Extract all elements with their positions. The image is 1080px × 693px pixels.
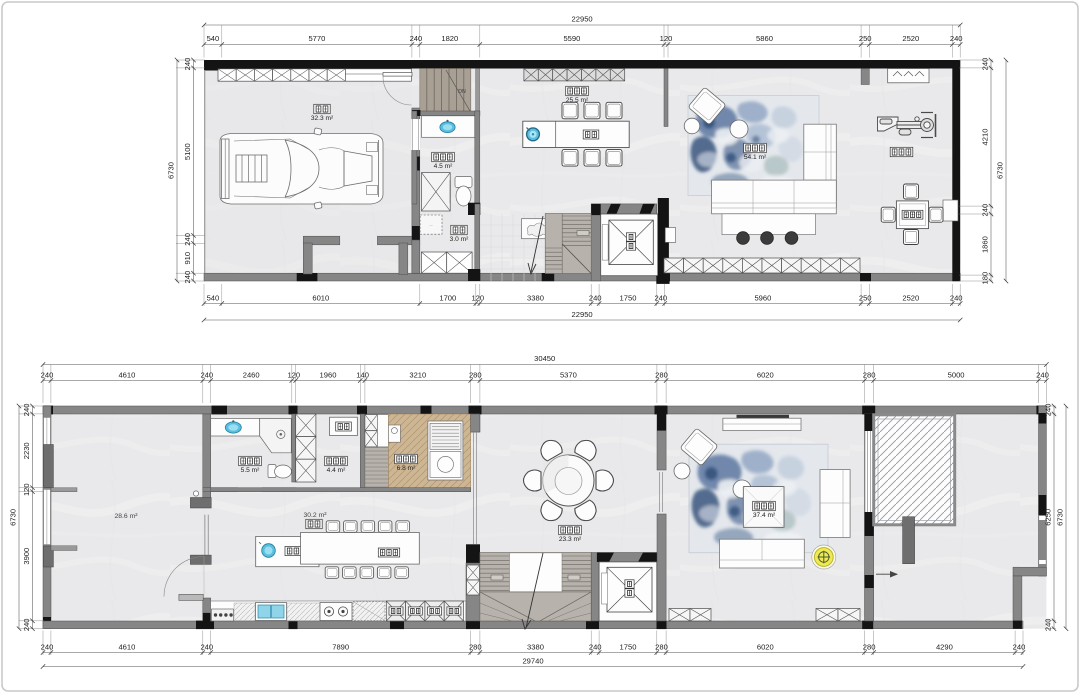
svg-text:120: 120: [471, 294, 484, 303]
svg-text:240: 240: [183, 58, 192, 71]
svg-text:5100: 5100: [183, 143, 192, 160]
svg-text:1750: 1750: [620, 294, 637, 303]
svg-text:4.4 m²: 4.4 m²: [327, 467, 346, 474]
svg-text:29740: 29740: [522, 657, 543, 666]
svg-text:1750: 1750: [620, 643, 637, 652]
svg-text:22950: 22950: [572, 310, 593, 319]
svg-text:23.3 m²: 23.3 m²: [559, 536, 582, 543]
svg-text:54.1 m²: 54.1 m²: [744, 154, 767, 161]
svg-text:1960: 1960: [320, 371, 337, 380]
svg-text:6020: 6020: [757, 643, 774, 652]
svg-text:250: 250: [859, 34, 872, 43]
svg-text:2230: 2230: [22, 442, 31, 459]
svg-text:240: 240: [410, 34, 423, 43]
svg-text:280: 280: [655, 643, 668, 652]
svg-text:6730: 6730: [9, 509, 18, 526]
svg-text:37.4 m²: 37.4 m²: [753, 512, 776, 519]
svg-text:3.0 m²: 3.0 m²: [450, 236, 469, 243]
svg-text:240: 240: [22, 618, 31, 631]
svg-text:28.6 m²: 28.6 m²: [114, 513, 138, 520]
svg-text:240: 240: [183, 271, 192, 284]
svg-text:140: 140: [356, 371, 369, 380]
svg-text:4.5 m²: 4.5 m²: [434, 163, 453, 170]
svg-text:120: 120: [660, 34, 673, 43]
svg-text:4210: 4210: [981, 129, 990, 146]
svg-text:910: 910: [183, 252, 192, 265]
svg-text:5590: 5590: [563, 34, 580, 43]
svg-text:5860: 5860: [756, 34, 773, 43]
svg-text:6730: 6730: [1056, 509, 1065, 526]
svg-text:1700: 1700: [439, 294, 456, 303]
svg-text:120: 120: [22, 483, 31, 496]
svg-text:3210: 3210: [409, 371, 426, 380]
svg-text:280: 280: [863, 643, 876, 652]
svg-text:7890: 7890: [332, 643, 349, 652]
svg-text:240: 240: [1044, 618, 1053, 631]
svg-text:5.5 m²: 5.5 m²: [241, 467, 260, 474]
svg-text:30.2 m²: 30.2 m²: [303, 512, 327, 519]
svg-text:32.3 m²: 32.3 m²: [311, 115, 334, 122]
svg-text:240: 240: [41, 643, 54, 652]
svg-text:240: 240: [1013, 643, 1026, 652]
svg-text:240: 240: [1036, 371, 1049, 380]
svg-text:6020: 6020: [757, 371, 774, 380]
svg-text:2520: 2520: [902, 34, 919, 43]
svg-text:4610: 4610: [118, 643, 135, 652]
svg-text:280: 280: [469, 371, 482, 380]
svg-text:6010: 6010: [312, 294, 329, 303]
svg-text:5960: 5960: [754, 294, 771, 303]
svg-text:240: 240: [981, 58, 990, 71]
svg-text:240: 240: [589, 643, 602, 652]
svg-text:4610: 4610: [118, 371, 135, 380]
svg-text:540: 540: [207, 34, 220, 43]
svg-text:540: 540: [207, 294, 220, 303]
svg-text:240: 240: [183, 233, 192, 246]
svg-text:240: 240: [981, 204, 990, 217]
svg-text:250: 250: [859, 294, 872, 303]
svg-text:22950: 22950: [572, 15, 593, 24]
svg-text:4290: 4290: [936, 643, 953, 652]
svg-text:280: 280: [655, 371, 668, 380]
svg-text:280: 280: [863, 371, 876, 380]
svg-text:240: 240: [200, 371, 213, 380]
svg-text:3380: 3380: [527, 643, 544, 652]
svg-text:1820: 1820: [441, 34, 458, 43]
svg-text:2460: 2460: [243, 371, 260, 380]
svg-text:6250: 6250: [1044, 509, 1053, 526]
svg-text:6730: 6730: [996, 162, 1005, 179]
svg-text:240: 240: [950, 294, 963, 303]
svg-text:6730: 6730: [167, 162, 176, 179]
svg-text:240: 240: [654, 294, 667, 303]
svg-text:240: 240: [950, 34, 963, 43]
svg-text:240: 240: [1044, 404, 1053, 417]
svg-text:240: 240: [22, 404, 31, 417]
svg-text:240: 240: [589, 294, 602, 303]
svg-text:3380: 3380: [527, 294, 544, 303]
svg-text:240: 240: [41, 371, 54, 380]
svg-text:...: ...: [429, 222, 432, 227]
svg-text:5000: 5000: [948, 371, 965, 380]
svg-text:30450: 30450: [534, 354, 555, 363]
svg-text:2520: 2520: [902, 294, 919, 303]
svg-text:5770: 5770: [308, 34, 325, 43]
svg-text:240: 240: [200, 643, 213, 652]
svg-text:280: 280: [469, 643, 482, 652]
svg-text:5370: 5370: [560, 371, 577, 380]
svg-text:1860: 1860: [981, 236, 990, 253]
svg-text:6.8 m²: 6.8 m²: [397, 465, 416, 472]
svg-text:3900: 3900: [22, 548, 31, 565]
svg-text:120: 120: [287, 371, 300, 380]
svg-text:DN: DN: [458, 89, 466, 95]
svg-text:180: 180: [981, 272, 990, 285]
